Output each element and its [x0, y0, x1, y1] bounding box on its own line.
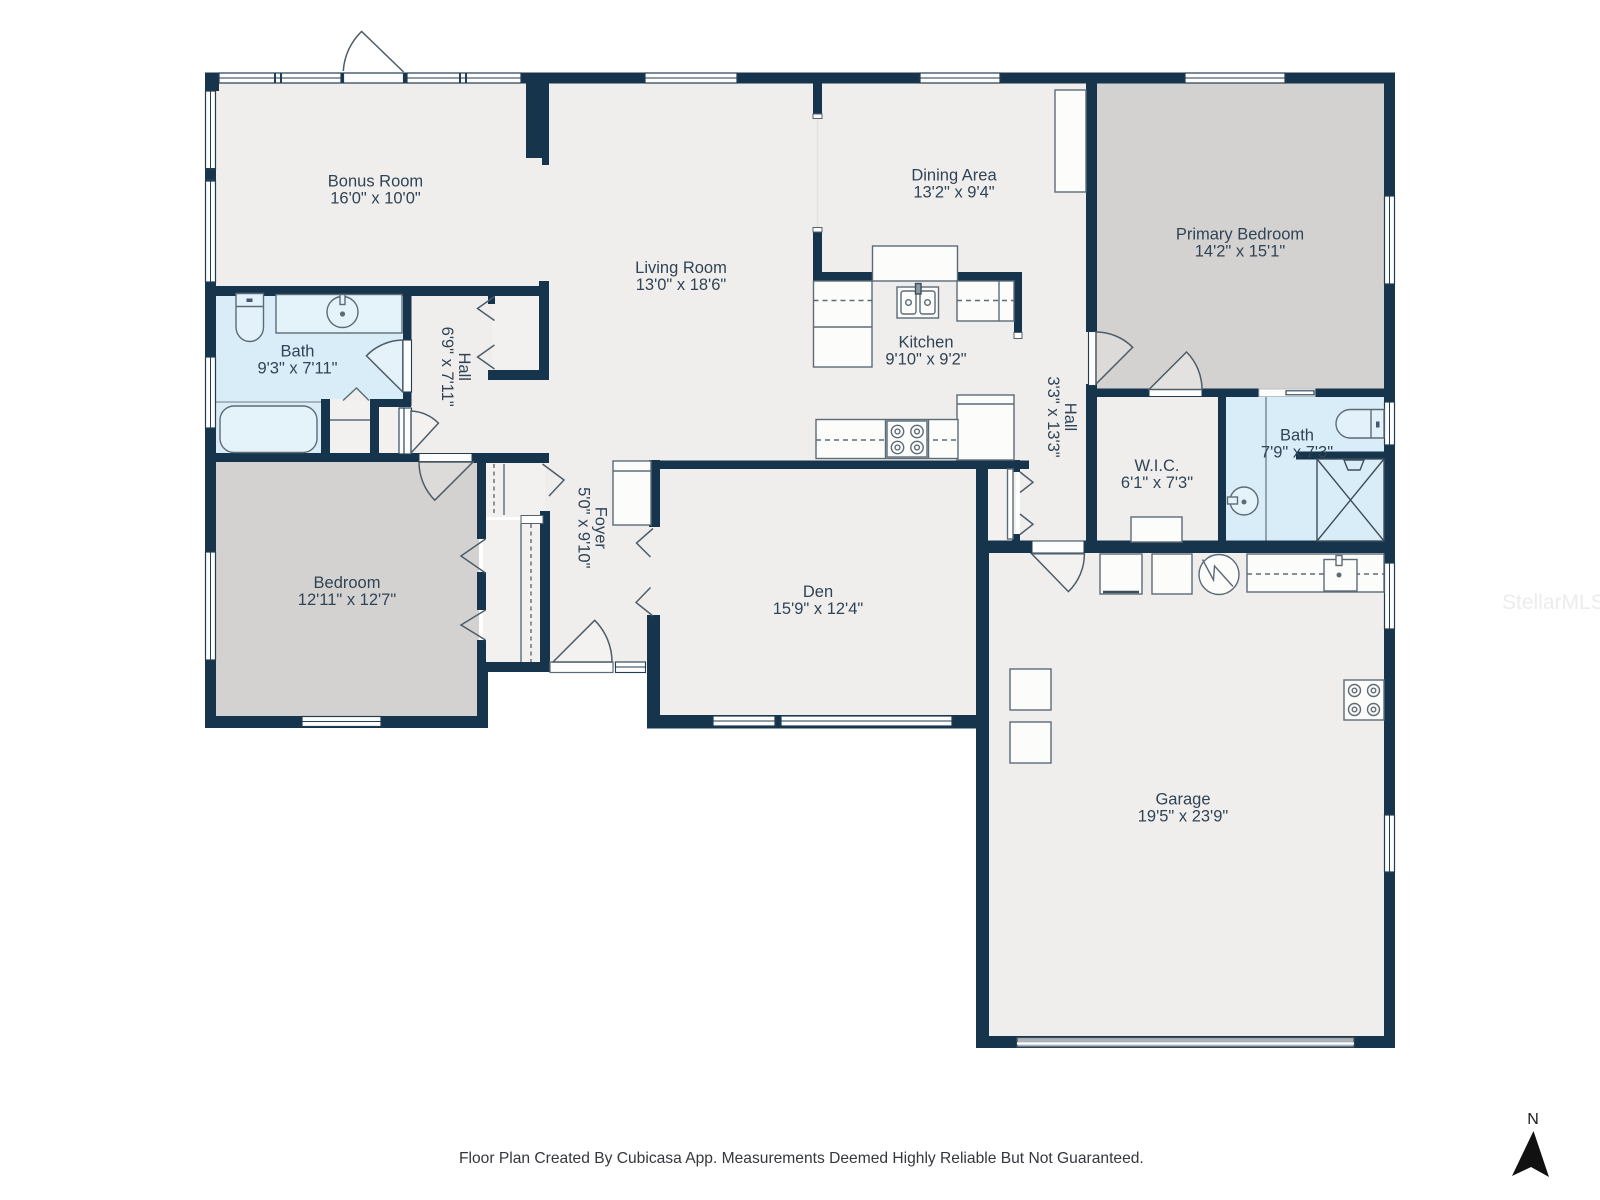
svg-text:13'0" x 18'6": 13'0" x 18'6" [636, 276, 727, 294]
svg-text:6'9" x 7'11": 6'9" x 7'11" [438, 327, 456, 407]
svg-text:9'3" x 7'11": 9'3" x 7'11" [257, 360, 337, 378]
svg-text:Bath: Bath [281, 343, 315, 361]
svg-text:W.I.C.: W.I.C. [1135, 457, 1180, 475]
svg-text:Hall: Hall [1061, 403, 1079, 431]
svg-text:Bedroom: Bedroom [314, 574, 381, 592]
svg-text:Garage: Garage [1155, 791, 1210, 809]
svg-text:Primary Bedroom: Primary Bedroom [1176, 226, 1304, 244]
svg-text:9'10" x 9'2": 9'10" x 9'2" [885, 351, 966, 369]
svg-text:StellarMLS: StellarMLS [1502, 591, 1600, 614]
svg-text:Living Room: Living Room [635, 259, 727, 277]
svg-text:Floor Plan Created By Cubicasa: Floor Plan Created By Cubicasa App. Meas… [459, 1150, 1144, 1167]
svg-text:Bath: Bath [1280, 427, 1314, 445]
svg-text:15'9" x 12'4": 15'9" x 12'4" [773, 600, 864, 618]
svg-text:Hall: Hall [455, 352, 473, 380]
svg-text:Den: Den [803, 583, 833, 601]
svg-text:19'5" x 23'9": 19'5" x 23'9" [1138, 808, 1229, 826]
svg-text:13'2" x 9'4": 13'2" x 9'4" [913, 184, 994, 202]
svg-text:N: N [1527, 1111, 1539, 1128]
svg-text:6'1" x 7'3": 6'1" x 7'3" [1121, 474, 1193, 492]
svg-text:7'9" x 7'3": 7'9" x 7'3" [1261, 444, 1333, 462]
svg-text:3'3" x 13'3": 3'3" x 13'3" [1044, 376, 1062, 457]
svg-text:Foyer: Foyer [592, 507, 610, 550]
svg-text:5'0" x 9'10": 5'0" x 9'10" [575, 487, 593, 568]
svg-text:Bonus Room: Bonus Room [328, 173, 423, 191]
svg-text:14'2" x 15'1": 14'2" x 15'1" [1195, 243, 1286, 261]
svg-text:Dining Area: Dining Area [911, 167, 997, 185]
svg-text:Kitchen: Kitchen [898, 334, 953, 352]
svg-text:16'0" x 10'0": 16'0" x 10'0" [330, 190, 421, 208]
svg-text:12'11" x 12'7": 12'11" x 12'7" [298, 591, 397, 609]
